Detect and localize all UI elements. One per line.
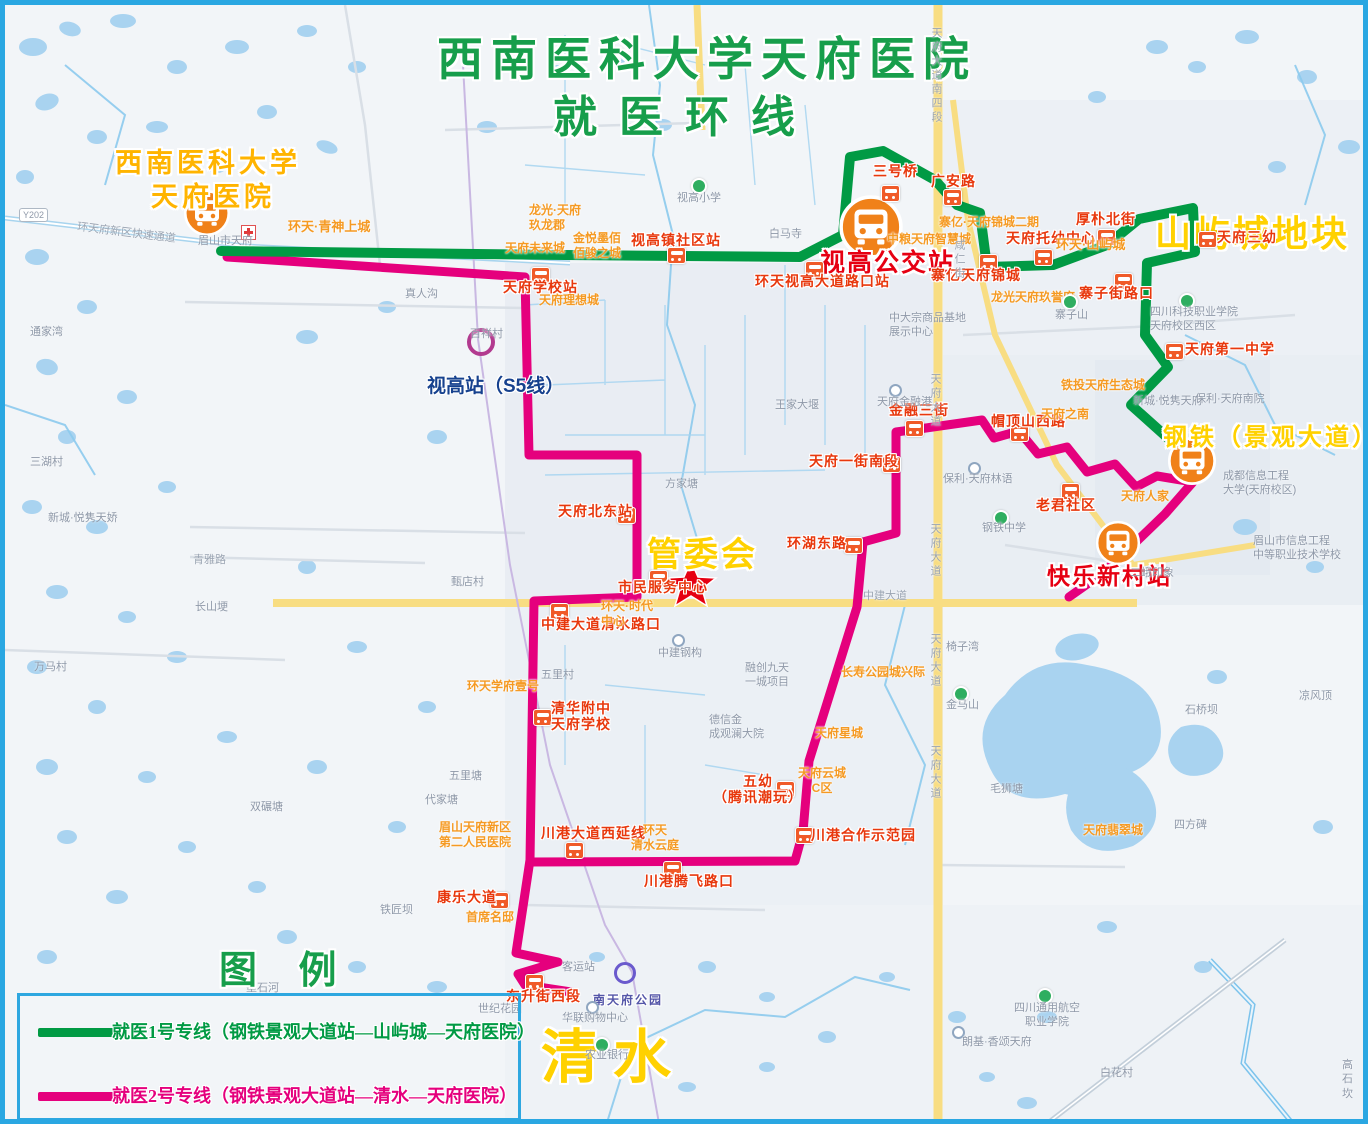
poi-label: 五里村: [541, 668, 574, 682]
area-label: 天府星城: [815, 726, 863, 741]
poi-label: 农业银行: [585, 1048, 629, 1062]
area-label: 环天·时代 中心: [601, 599, 653, 629]
bus-stop-icon: [533, 709, 552, 726]
road-label: 天府大道南四段: [928, 27, 944, 125]
bus-stop-icon: [943, 189, 962, 206]
callout-guanweihui: 管委会: [647, 527, 758, 576]
area-label: 天府人家: [1121, 489, 1169, 504]
road-label: 天府大道: [927, 373, 943, 429]
poi-label: 真人沟: [405, 287, 438, 301]
poi-label: 中大宗商品基地 展示中心: [889, 311, 966, 340]
legend-route2-swatch: [38, 1092, 114, 1101]
bus-stop-icon: [905, 420, 924, 437]
poi-label: 钢铁中学: [982, 521, 1026, 535]
poi-label: 天府金融港: [877, 395, 932, 409]
poi-label: 方家塘: [665, 477, 698, 491]
poster-title-line2: 就医环线: [553, 81, 817, 145]
poi-label: 华联购物中心: [562, 1011, 628, 1025]
area-label: 天府理想城: [539, 293, 599, 308]
bus-stop-label: 视高镇社区站: [631, 234, 721, 250]
callout-hospital-line2: 天府医院: [151, 175, 275, 214]
bus-stop-label: 天府第一中学: [1185, 343, 1275, 359]
poi-label: 四川通用航空 职业学院: [1014, 1001, 1080, 1030]
poster-title-line1: 西南医科大学天府医院: [437, 23, 977, 89]
legend-route1-label: 就医1号专线（钢铁景观大道站—山屿城—天府医院）: [112, 1018, 535, 1044]
poi-label: 保利·天府林语: [943, 472, 1013, 486]
poi-label: 朗基·香颂天府: [962, 1035, 1032, 1049]
bus-stop-label: 川港腾飞路口: [644, 875, 734, 891]
bus-stop-label: 三号桥: [873, 165, 918, 181]
bus-stop-label: 天府北东站: [558, 505, 633, 521]
legend-heading: 图 例: [219, 939, 353, 994]
area-label: 铁投天府生态城: [1061, 378, 1145, 393]
poi-label: 凉风顶: [1299, 689, 1332, 703]
bus-stop-label: 厚朴北街: [1076, 213, 1136, 229]
bus-stop-icon: [1165, 343, 1184, 360]
area-label: 眉山天府新区 第二人民医院: [439, 820, 511, 850]
poi-label: 白马寺: [769, 227, 802, 241]
poi-label: 甄店村: [451, 575, 484, 589]
area-label: 天府未来城: [505, 241, 565, 256]
poi-label: 眉山市信息工程 中等职业技术学校: [1253, 534, 1341, 563]
area-label: 金悦墨佰 佰骏之城: [573, 231, 621, 261]
poi-label: 视高小学: [677, 191, 721, 205]
bus-stop-label: 康乐大道: [437, 891, 497, 907]
poi-label: 寨子山: [1055, 308, 1088, 322]
poi-label: 德信金 成观澜大院: [709, 713, 764, 742]
bus-stop-icon: [1198, 231, 1217, 248]
poi-label: 椅子湾: [946, 640, 979, 654]
bus-stop-label: 清华附中 天府学校: [551, 702, 611, 734]
poi-label: 成都信息工程 大学(天府校区): [1223, 469, 1296, 498]
area-label: 长寿公园城兴际: [841, 665, 925, 680]
poi-label: 二峨印象: [1130, 566, 1174, 580]
callout-gangtie: 钢铁（景观大道）: [1163, 417, 1368, 452]
road-label: 青雅路: [193, 551, 226, 567]
bus-stop-label: 天府一街南段: [809, 455, 899, 471]
poi-label: 三湖村: [30, 455, 63, 469]
area-label: 环天 清水云庭: [631, 823, 679, 853]
bus-stop-icon: [1061, 483, 1080, 500]
park-ring-icon: [614, 962, 636, 984]
legend-route2-label: 就医2号专线（钢铁景观大道站—清水—天府医院）: [112, 1082, 517, 1108]
bus-stop-label: 广安路: [931, 175, 976, 191]
poi-label: 新城·悦隽天府: [1133, 394, 1203, 408]
bus-stop-label: 市民服务中心: [618, 581, 708, 597]
area-label: 龙光·天府 玖龙郡: [529, 203, 581, 233]
area-label: 环天·山屿城: [1056, 237, 1125, 253]
area-label: 天府云城 C区: [798, 766, 846, 796]
bus-stop-icon: [565, 842, 584, 859]
poi-label: 新城·悦隽天娇: [48, 511, 118, 525]
poi-label: 四川科技职业学院 天府校区西区: [1150, 305, 1238, 334]
poi-label: 高石坎: [1342, 1058, 1363, 1101]
poi-label: 五里塘: [449, 769, 482, 783]
poi-label: 金马山: [946, 698, 979, 712]
poi-label: 万马村: [34, 660, 67, 674]
poi-label: 铁匠坝: [380, 903, 413, 917]
road-label: 天府大道: [927, 745, 943, 801]
poi-label: 代家塘: [425, 793, 458, 807]
transit-map-poster: 西南医科大学天府医院 就医环线 西南医科大学 天府医院 视高公交站 山屿城地块 …: [0, 0, 1368, 1124]
bus-stop-label: 川港合作示范园: [811, 829, 916, 845]
road-badge-y202: Y202: [19, 208, 48, 222]
area-label: 环天·青神上城: [288, 219, 370, 235]
bus-stop-icon: [525, 974, 544, 991]
s5-station-label: 视高站（S5线）: [427, 371, 564, 398]
bus-stop-label: 五幼 （腾讯潮玩）: [713, 775, 803, 807]
poi-label: 石桥坝: [1185, 703, 1218, 717]
road-label: 天府大道: [927, 523, 943, 579]
poi-label: 眉山市天府: [198, 234, 253, 248]
bus-stop-label: 天府三幼: [1217, 231, 1277, 247]
poi-label: 王家大堰: [775, 398, 819, 412]
poi-label: 通家湾: [30, 325, 63, 339]
poi-label: 长山埂: [195, 600, 228, 614]
bus-stop-label: 老君社区: [1036, 499, 1096, 515]
area-label: 首席名邸: [466, 910, 514, 925]
road-label: 中建大道: [863, 587, 907, 603]
bus-stop-icon: [1034, 249, 1053, 266]
bus-stop-label: 寨子街路口: [1079, 287, 1154, 303]
poi-label: 百祥村: [470, 327, 503, 341]
bus-stop-icon: [881, 185, 900, 202]
poi-label: 四方碑: [1174, 818, 1207, 832]
poi-label: 保利·天府南院: [1195, 392, 1265, 406]
road-label: 天府大道: [927, 633, 943, 689]
road-label: 咸仁街: [951, 239, 967, 281]
bus-stop-label: 环湖东路: [787, 537, 847, 553]
area-label: 环天学府壹号: [467, 679, 539, 694]
legend-route1-swatch: [38, 1028, 114, 1037]
park-label: 南天府公园: [593, 991, 663, 1008]
area-label: 天府翡翠城: [1083, 823, 1143, 838]
area-label: 天府之南: [1041, 407, 1089, 422]
poi-label: 中建钢构: [658, 646, 702, 660]
area-label: 寨亿·天府锦城二期: [939, 215, 1039, 230]
poi-label: 客运站: [562, 960, 595, 974]
legend-box: 就医1号专线（钢铁景观大道站—山屿城—天府医院） 就医2号专线（钢铁景观大道站—…: [17, 993, 521, 1121]
poi-label: 毛狮塘: [990, 782, 1023, 796]
bus-stop-label: 寨亿天府锦城: [931, 269, 1021, 285]
bus-stop-label: 环天视高大道路口站: [755, 275, 890, 291]
poi-label: 双碾塘: [250, 800, 283, 814]
poi-label: 融创九天 一城项目: [745, 661, 789, 690]
poi-label: 白花村: [1100, 1066, 1133, 1080]
